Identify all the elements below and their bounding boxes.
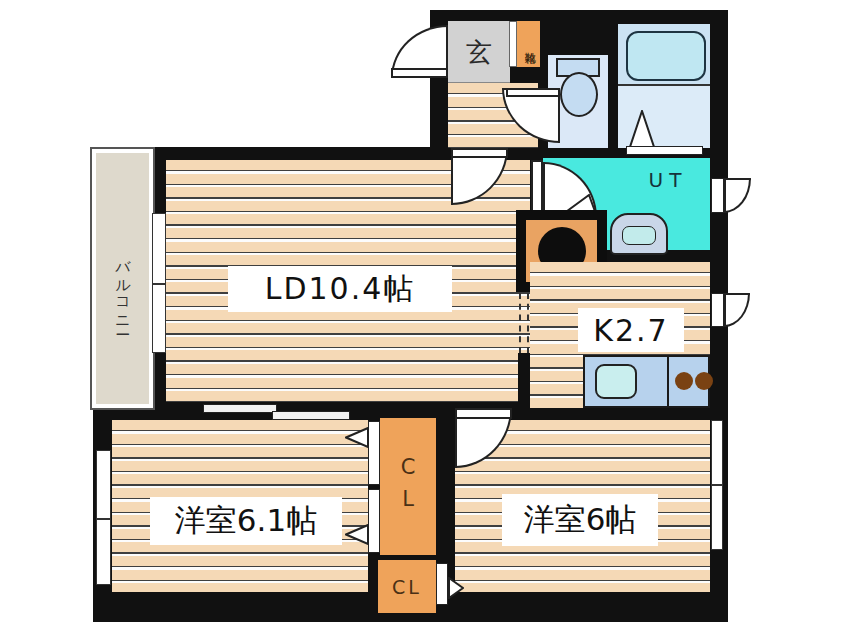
closet-upper-arrow-top (345, 427, 369, 448)
counter-divider (667, 357, 669, 406)
bathtub (626, 31, 706, 81)
bedroom-right-window-divider (711, 484, 723, 486)
closet-upper: CL (380, 418, 436, 555)
closet-lower-arrow (448, 577, 464, 599)
closet-upper-label: CL (396, 455, 420, 519)
toilet-door-leaf (506, 88, 560, 97)
kitchen-exterior-door-swing (724, 293, 750, 327)
balcony: バルコニー (90, 147, 155, 410)
bedroom-left-label-box: 洋室6.1帖 (150, 497, 342, 545)
washing-machine-inner (622, 226, 656, 245)
toilet-bowl (560, 72, 598, 117)
kitchen-exterior-door-leaf (711, 293, 724, 327)
shoe-box-label: 靴箱 (521, 43, 536, 45)
kitchen-label-box: K2.7 (578, 308, 684, 352)
bedroom-right-door-leaf (455, 408, 512, 419)
kitchen-label: K2.7 (593, 313, 668, 348)
closet-upper-door-bottom (368, 489, 380, 553)
closet-lower-door (436, 563, 448, 605)
utility-exterior-door-swing (724, 178, 751, 213)
sliding-door-panel-left (203, 404, 277, 413)
bedroom-left-window-divider (96, 518, 111, 520)
bedroom-right-label: 洋室6帖 (524, 499, 637, 541)
shoe-box-door (509, 21, 517, 67)
entrance-label: 玄 (466, 35, 492, 70)
living-dining-label-box: LD10.4帖 (228, 266, 452, 312)
closet-upper-arrow-bottom (345, 524, 369, 545)
entrance-door-leaf (391, 68, 448, 78)
kitchen-sink (595, 364, 637, 399)
living-dining-label: LD10.4帖 (265, 269, 416, 310)
floor-plan: バルコニー 玄 靴箱 UT (0, 0, 846, 634)
utility-label: UT (649, 168, 688, 192)
living-balcony-window-divider (152, 283, 166, 285)
closet-upper-door-top (368, 421, 380, 485)
utility-exterior-door-leaf (711, 178, 724, 213)
living-door-leaf (451, 148, 508, 158)
stove-burner-right (695, 372, 713, 390)
shoe-box: 靴箱 (517, 21, 540, 67)
bedroom-right-label-box: 洋室6帖 (502, 494, 658, 546)
entrance-label-wrap: 玄 (448, 21, 510, 83)
sliding-door-panel-right (272, 411, 350, 420)
bath-folding-door-icon (629, 110, 655, 148)
balcony-label: バルコニー (92, 219, 153, 359)
kitchen-lower-wall (518, 353, 530, 403)
bath-threshold (626, 146, 703, 155)
kitchen-boundary-dashed-left (519, 293, 521, 353)
closet-lower: CL (378, 560, 436, 613)
kitchen-boundary-dashed-right (527, 293, 529, 353)
bedroom-left-label: 洋室6.1帖 (175, 500, 317, 542)
utility-door-leaf (531, 160, 543, 217)
closet-lower-label: CL (392, 576, 422, 598)
stove-burner-left (675, 372, 693, 390)
utility-label-wrap: UT (638, 165, 698, 195)
